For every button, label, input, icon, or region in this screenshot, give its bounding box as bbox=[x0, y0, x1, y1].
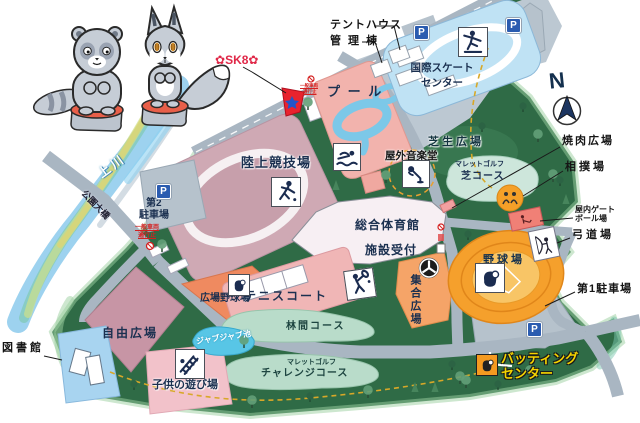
parking-icon: P bbox=[156, 184, 171, 199]
flower-icon: ✿ bbox=[248, 53, 258, 67]
label-batting-2: センター bbox=[501, 367, 553, 380]
label-no-entry-2: 通行止 bbox=[138, 233, 156, 239]
label-parking2-2: 駐車場 bbox=[139, 211, 169, 221]
label-sumo: 相撲場 bbox=[565, 162, 607, 173]
label-challenge-2: チャレンジコース bbox=[261, 369, 348, 379]
slide-icon bbox=[175, 349, 205, 379]
label-athletics-stadium: 陸上競技場 bbox=[241, 156, 311, 169]
label-skate-center-1: 国際スケート bbox=[400, 63, 484, 74]
mascots-illustration bbox=[31, 7, 229, 131]
batting-center-icon bbox=[476, 354, 498, 376]
label-bbq-plaza: 焼肉広場 bbox=[562, 136, 614, 147]
label-pool: プ ー ル bbox=[327, 85, 383, 98]
label-reception: 施設受付 bbox=[365, 244, 417, 256]
label-no-entry-small-1: 一般車両 bbox=[300, 84, 318, 89]
label-lawn-plaza: 芝生広場 bbox=[428, 137, 484, 148]
label-batting-1: バッティング bbox=[501, 352, 578, 365]
swimmer-icon bbox=[333, 143, 361, 171]
speed-skater-icon bbox=[458, 27, 488, 57]
microphone-icon bbox=[402, 160, 430, 188]
label-skate-center-2: センター bbox=[400, 78, 484, 89]
label-parking2-1: 第2 bbox=[146, 199, 162, 209]
baseball-glove-icon bbox=[475, 263, 505, 293]
baseball-glove-icon bbox=[228, 274, 250, 296]
tanuki-mascot bbox=[31, 27, 123, 131]
label-tent-house: テントハウス bbox=[330, 20, 402, 31]
parking-icon: P bbox=[506, 18, 521, 33]
label-gateball-2: ボール場 bbox=[575, 215, 607, 223]
label-library: 図書館 bbox=[2, 343, 44, 354]
sumo-ring-shape bbox=[497, 185, 523, 211]
park-guide-map: テントハウス 管 理 棟 ✿SK8✿ 国際スケート センター プ ー ル 陸上競… bbox=[0, 0, 640, 423]
label-challenge-1: マレットゴルフ bbox=[287, 359, 336, 366]
label-gateball-1: 屋内ゲート bbox=[575, 206, 615, 214]
compass-icon bbox=[554, 96, 581, 125]
flower-icon: ✿ bbox=[215, 53, 225, 67]
label-kyudo: 弓道場 bbox=[572, 230, 614, 241]
label-tennis: テニスコート bbox=[244, 290, 328, 302]
runner-icon bbox=[271, 177, 301, 207]
label-admin-building: 管 理 棟 bbox=[330, 36, 379, 47]
label-forest-course: 林間コース bbox=[286, 322, 346, 332]
parking-icon: P bbox=[527, 322, 542, 337]
label-free-plaza: 自由広場 bbox=[102, 327, 158, 339]
label-sk8: ✿SK8✿ bbox=[215, 54, 258, 66]
label-no-entry-1: 一般車両 bbox=[135, 225, 159, 231]
assembly-meeting-icon bbox=[419, 258, 439, 278]
parking-icon: P bbox=[414, 25, 429, 40]
label-no-entry-small-2: 通行止 bbox=[303, 90, 317, 95]
tennis-player-icon bbox=[343, 267, 377, 301]
label-gymnasium: 総合体育館 bbox=[355, 219, 420, 231]
label-mallet-lawn-2: 芝コース bbox=[461, 172, 505, 182]
label-compass-north: N bbox=[548, 69, 566, 93]
kyudo-range-shape bbox=[528, 227, 560, 262]
label-children-playground: 子供の遊び場 bbox=[152, 380, 218, 391]
label-mallet-lawn-1: マレットゴルフ bbox=[455, 161, 504, 168]
label-parking1: 第1駐車場 bbox=[577, 284, 632, 295]
label-assembly-plaza: 集合広場 bbox=[409, 274, 420, 326]
